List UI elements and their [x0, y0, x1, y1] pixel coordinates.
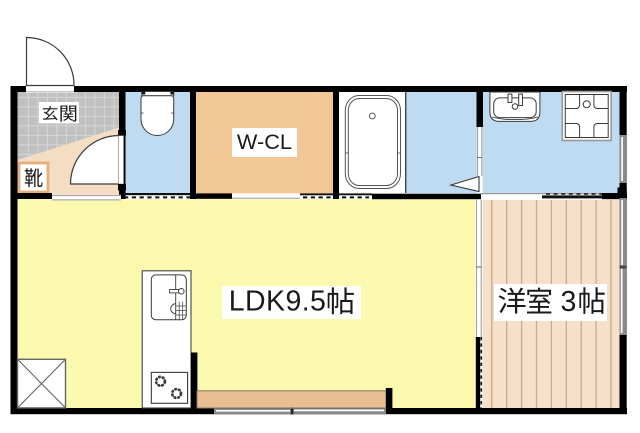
svg-text:W-CL: W-CL [237, 129, 292, 154]
svg-text:LDK9.5: LDK9.5 [229, 286, 326, 318]
svg-text:3: 3 [561, 286, 577, 318]
